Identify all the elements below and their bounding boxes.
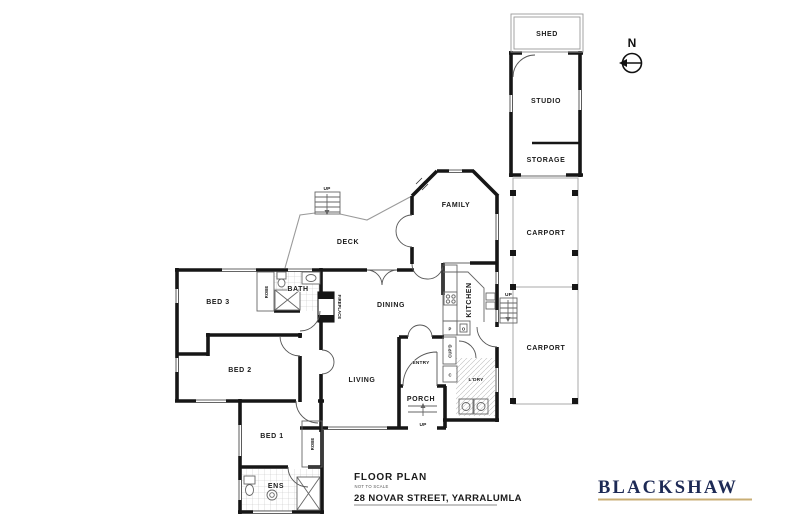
north-label: N	[628, 36, 637, 50]
room-labels: SHED STUDIO STORAGE CARPORT CARPORT FAMI…	[206, 31, 565, 490]
label-robe-bed3: ROBE	[264, 286, 269, 299]
brand-name: BLACKSHAW	[598, 478, 738, 498]
label-oven: O	[462, 327, 466, 332]
carport-posts	[510, 190, 578, 404]
room-label-storage: STORAGE	[527, 157, 566, 164]
brand-logo: BLACKSHAW	[598, 478, 752, 500]
label-robe-bed1: ROBE	[310, 438, 315, 451]
room-label-laundry: L'DRY	[468, 377, 484, 383]
plan-title: FLOOR PLAN	[354, 472, 427, 483]
room-label-dining: DINING	[377, 302, 405, 309]
fireplace	[318, 292, 334, 322]
cooktop	[444, 292, 457, 305]
room-label-bath: BATH	[287, 286, 308, 293]
room-label-carport-lower: CARPORT	[527, 345, 566, 352]
room-label-family: FAMILY	[442, 202, 471, 209]
room-label-ensuite: ENS	[268, 483, 284, 490]
room-label-deck: DECK	[337, 239, 359, 246]
room-label-living: LIVING	[349, 377, 376, 384]
walls	[175, 51, 583, 514]
label-up-deck: UP	[323, 186, 331, 192]
room-label-porch: PORCH	[407, 396, 435, 403]
plan-scale-note: NOT TO SCALE	[355, 484, 389, 489]
kitchen-bench	[443, 263, 484, 322]
room-label-carport-upper: CARPORT	[527, 230, 566, 237]
label-cupboard-c: C	[448, 373, 451, 378]
label-cupboard: CUP'D	[448, 344, 453, 357]
deck-outline	[285, 197, 410, 268]
label-up-porch: UP	[419, 422, 427, 428]
room-label-bed3: BED 3	[206, 299, 230, 306]
plan-address: 28 NOVAR STREET, YARRALUMLA	[354, 493, 522, 504]
north-indicator: N	[619, 36, 642, 73]
title-block: FLOOR PLAN NOT TO SCALE 28 NOVAR STREET,…	[354, 472, 522, 505]
floor-plan-page: N SHED STUDIO STORAGE CARPORT CARPORT FA…	[0, 0, 790, 527]
room-label-entry: ENTRY	[412, 360, 430, 366]
bath-toilet	[277, 272, 286, 279]
room-label-shed: SHED	[536, 31, 558, 38]
room-label-bed1: BED 1	[260, 433, 284, 440]
floor-plan-drawing: N SHED STUDIO STORAGE CARPORT CARPORT FA…	[0, 0, 790, 527]
label-pantry: P	[449, 327, 452, 332]
room-label-bed2: BED 2	[228, 367, 252, 374]
ensuite-toilet	[244, 476, 255, 484]
label-up-rear: UP	[505, 292, 513, 298]
windows	[176, 52, 582, 514]
label-fireplace: FIREPLACE	[337, 295, 342, 320]
room-label-kitchen: KITCHEN	[466, 282, 473, 317]
carports	[510, 178, 578, 404]
room-label-studio: STUDIO	[531, 98, 561, 105]
